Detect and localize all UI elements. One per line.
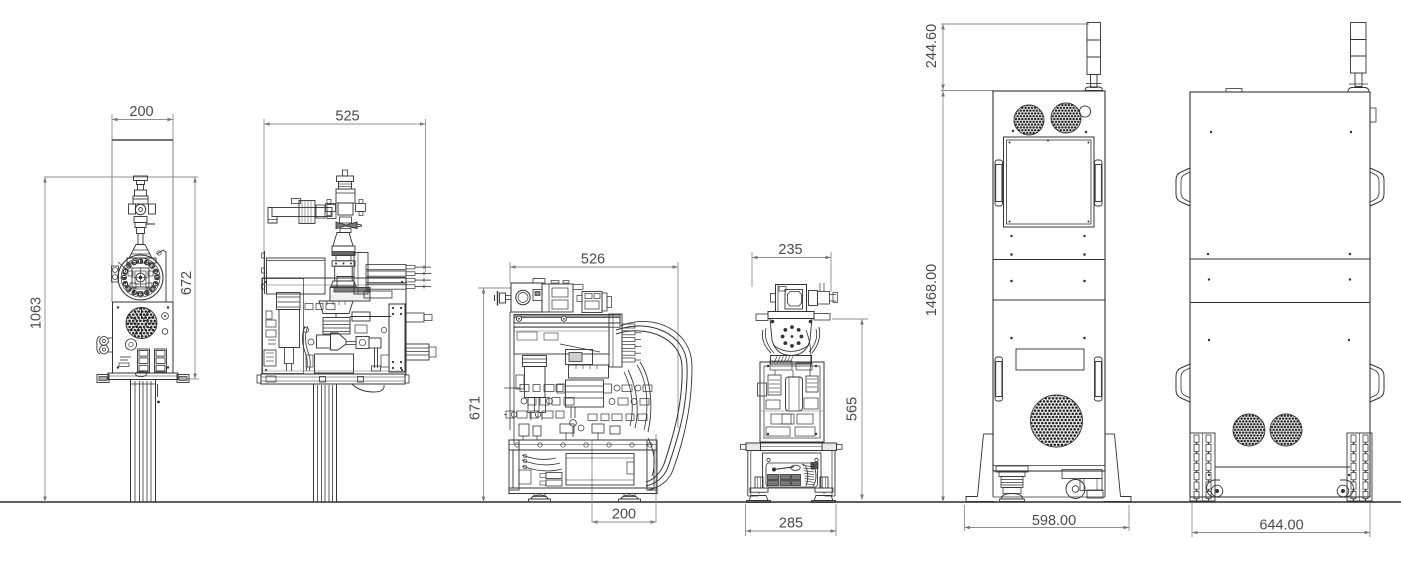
svg-text:565: 565 — [845, 397, 861, 421]
svg-text:644.00: 644.00 — [1259, 518, 1303, 534]
svg-text:672: 672 — [179, 271, 195, 295]
svg-text:1468.00: 1468.00 — [924, 264, 940, 316]
svg-text:285: 285 — [779, 516, 803, 532]
svg-text:526: 526 — [581, 252, 605, 268]
svg-text:244.60: 244.60 — [924, 24, 940, 68]
svg-text:1063: 1063 — [29, 297, 45, 329]
svg-text:200: 200 — [129, 104, 153, 120]
svg-text:671: 671 — [468, 396, 484, 420]
svg-text:525: 525 — [335, 109, 359, 125]
svg-text:235: 235 — [778, 242, 802, 258]
svg-text:598.00: 598.00 — [1032, 513, 1076, 529]
svg-text:200: 200 — [612, 507, 636, 523]
